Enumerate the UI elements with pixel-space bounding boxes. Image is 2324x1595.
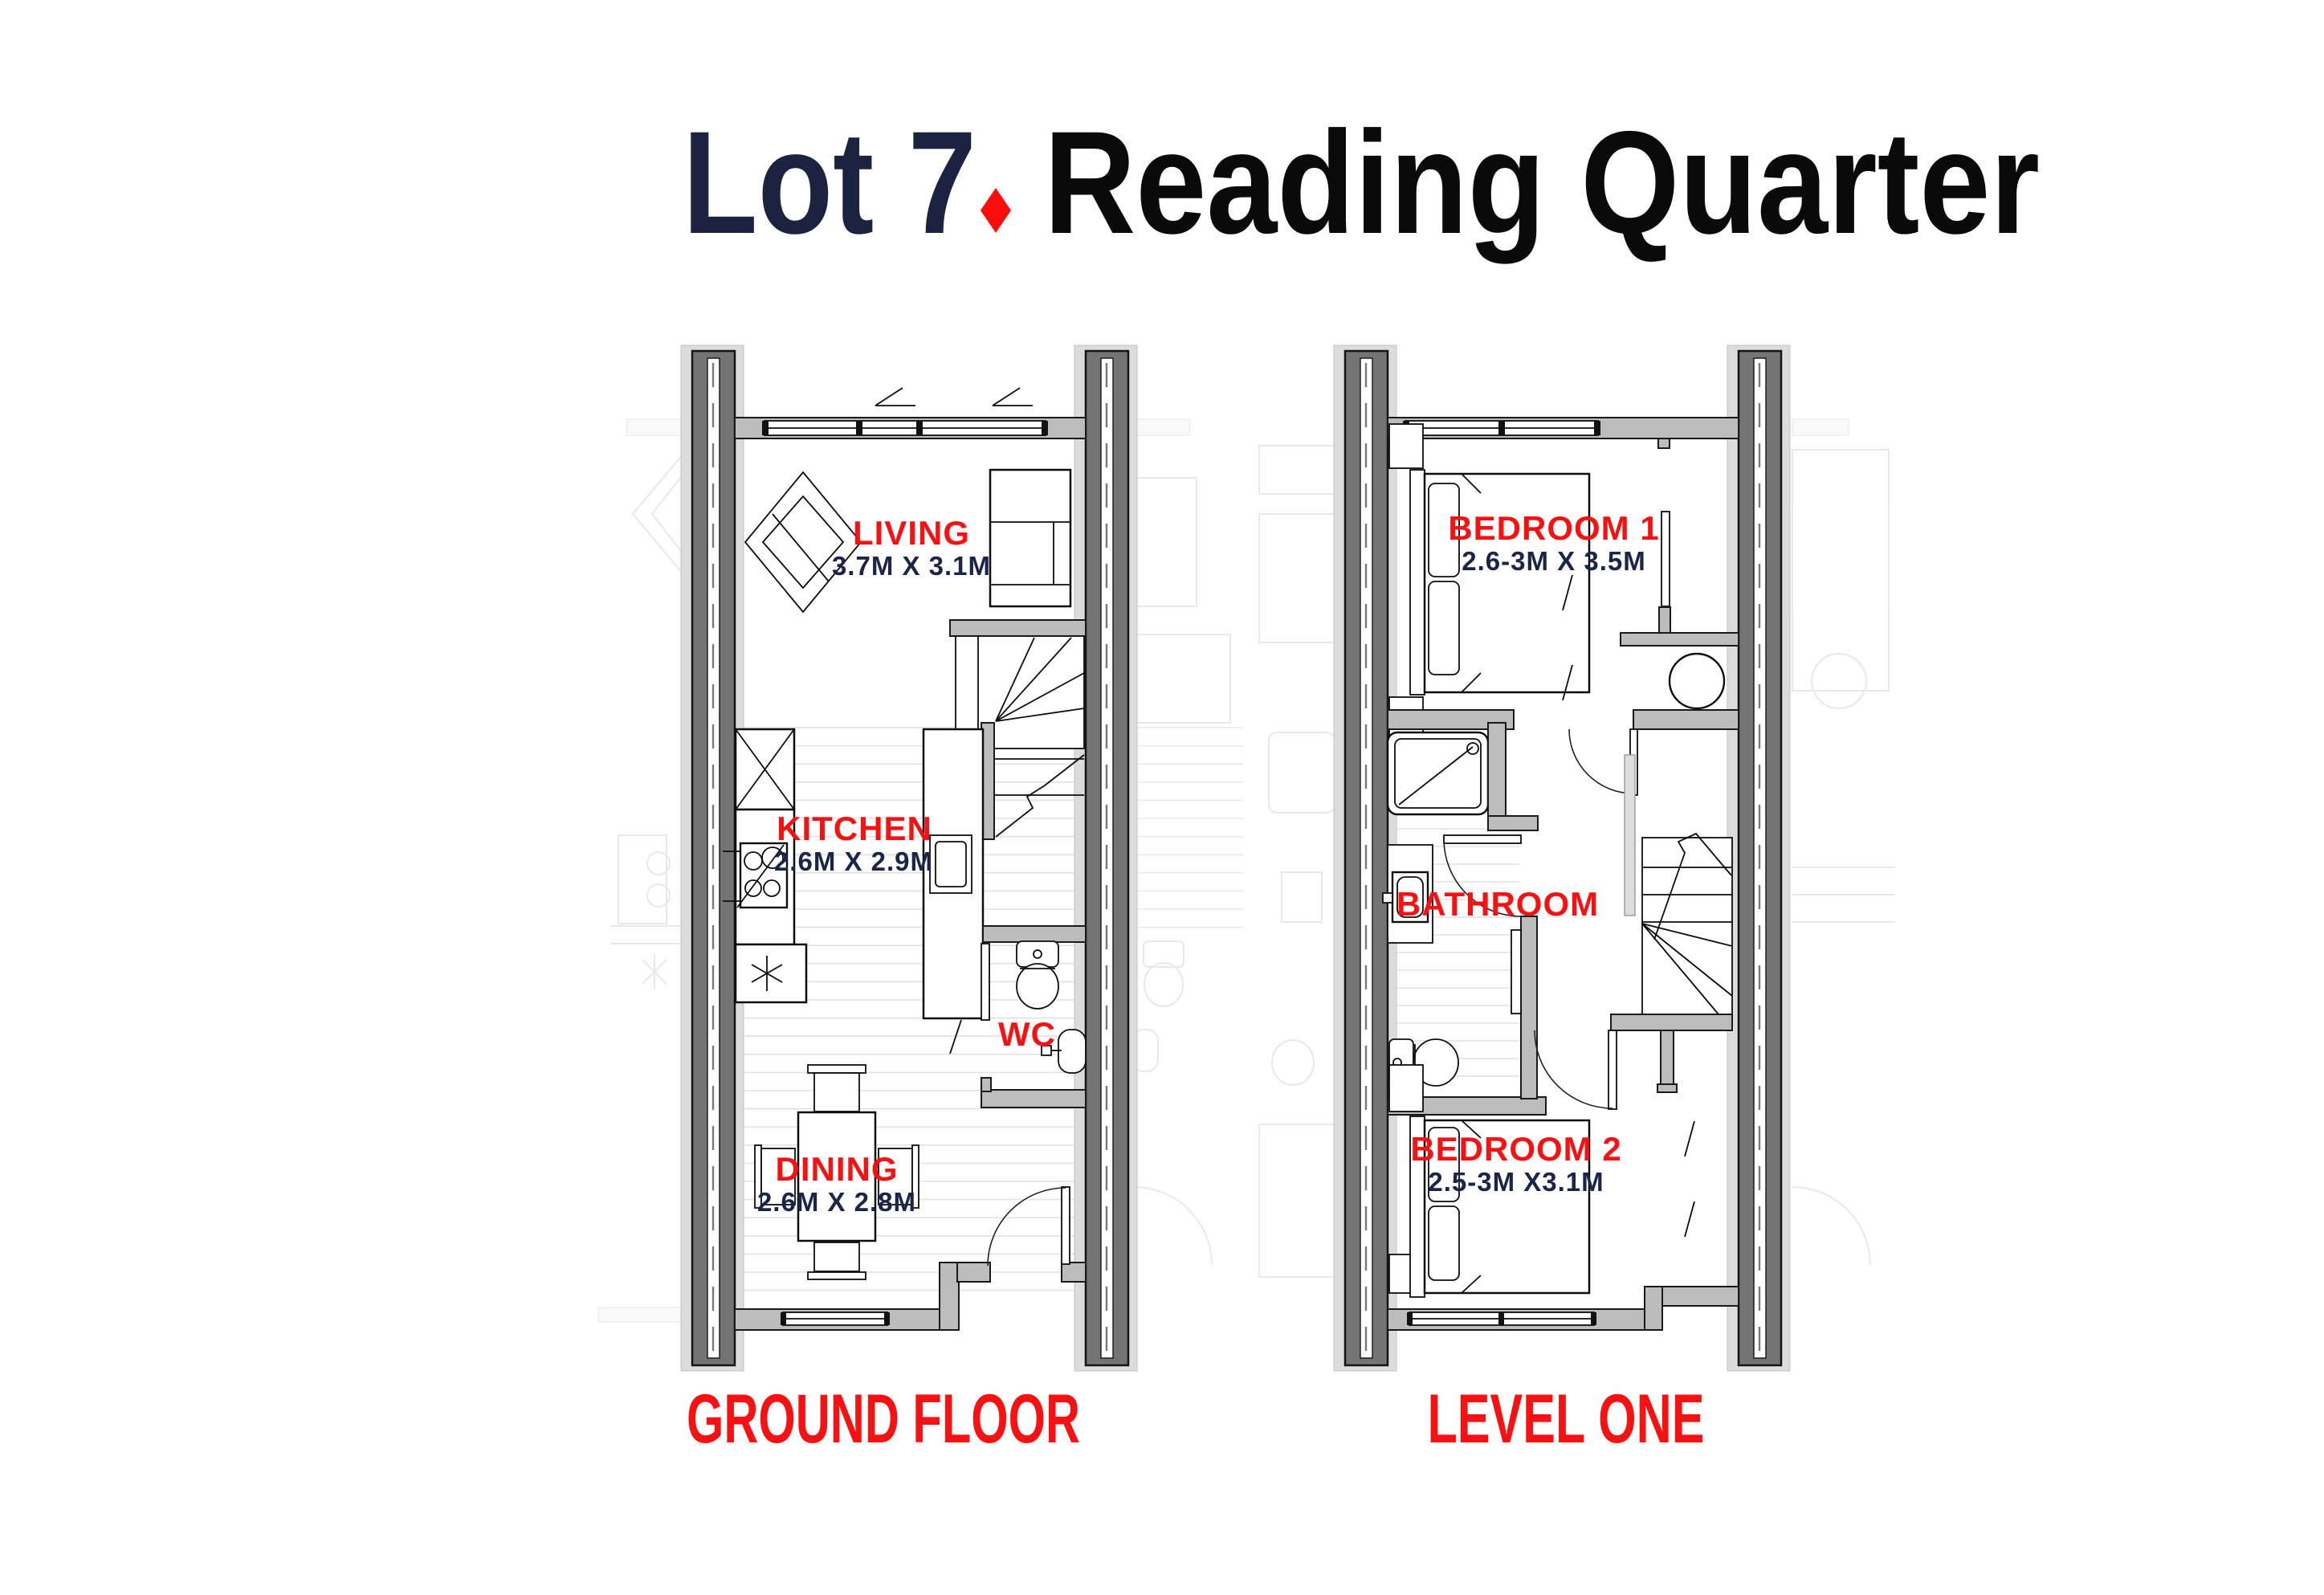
- gf-armchair: [745, 472, 861, 612]
- gf-toilet: [1017, 941, 1058, 1009]
- gf-room-living-dims: 3.7M X 3.1M: [832, 551, 991, 581]
- gf-neighbour-right: [1132, 419, 1243, 1265]
- gf-party-wall-left: [681, 345, 744, 1371]
- gf-room-kitchen-dims: 2.6M X 2.9M: [774, 846, 933, 876]
- l1-basin-bowl: [1670, 654, 1724, 708]
- l1-top-wall: [1388, 418, 1739, 448]
- sheet-title: Lot 7 Reading Quarter: [683, 100, 2040, 264]
- gf-neighbour-floor-lines: [1134, 728, 1243, 928]
- gf-room-living: LIVING: [853, 514, 970, 552]
- l1-shower: [1388, 732, 1488, 814]
- l1-wardrobe-sliding-door: [1661, 512, 1670, 606]
- title-lot: Lot 7: [683, 100, 976, 264]
- l1-bathroom-door-open: [1511, 930, 1521, 1014]
- l1-room-bedroom1-dims: 2.6-3M X 3.5M: [1462, 546, 1645, 576]
- ground-floor-plan: LIVING 3.7M X 3.1M KITCHEN 2.6M X 2.9M W…: [598, 345, 1243, 1458]
- gf-room-kitchen: KITCHEN: [777, 810, 932, 847]
- gf-room-dining-dims: 2.6M X 2.8M: [757, 1187, 916, 1217]
- l1-room-bedroom1: BEDROOM 1: [1448, 509, 1659, 547]
- gf-room-dining: DINING: [776, 1150, 899, 1188]
- gf-window-opening-marks: [875, 388, 1033, 406]
- gf-wc-door: [981, 944, 989, 1020]
- l1-bedroom1-bed: [1389, 424, 1589, 741]
- l1-neighbour-left: [1259, 446, 1335, 1277]
- l1-neighbour-right: [1792, 419, 1895, 1265]
- floorplan-sheet: Lot 7 Reading Quarter: [0, 0, 2324, 1595]
- gf-party-wall-right: [1074, 345, 1137, 1371]
- level-one-plan: BEDROOM 1 2.6-3M X 3.5M BATHROOM BEDROOM…: [1259, 345, 1895, 1458]
- gf-top-wall: [735, 388, 1086, 439]
- l1-room-bedroom2: BEDROOM 2: [1410, 1130, 1621, 1168]
- title-project: Reading Quarter: [1044, 100, 2040, 264]
- level-one-label: LEVEL ONE: [1428, 1381, 1705, 1458]
- title-diamond-icon: [981, 188, 1011, 233]
- l1-bedroom2-door: [1535, 1030, 1617, 1109]
- gf-sofa: [990, 470, 1070, 606]
- l1-stairs: [1625, 755, 1732, 1014]
- floorplan-canvas: Lot 7 Reading Quarter: [0, 0, 2324, 1595]
- ground-floor-label: GROUND FLOOR: [687, 1381, 1080, 1458]
- l1-party-wall-right: [1727, 345, 1790, 1371]
- gf-neighbour-left: [598, 419, 691, 1322]
- l1-room-bathroom: BATHROOM: [1396, 885, 1599, 923]
- l1-room-bedroom2-dims: 2.5-3M X3.1M: [1428, 1167, 1604, 1197]
- gf-appliance-dishwasher: [736, 944, 806, 1002]
- gf-room-wc: WC: [998, 1015, 1056, 1053]
